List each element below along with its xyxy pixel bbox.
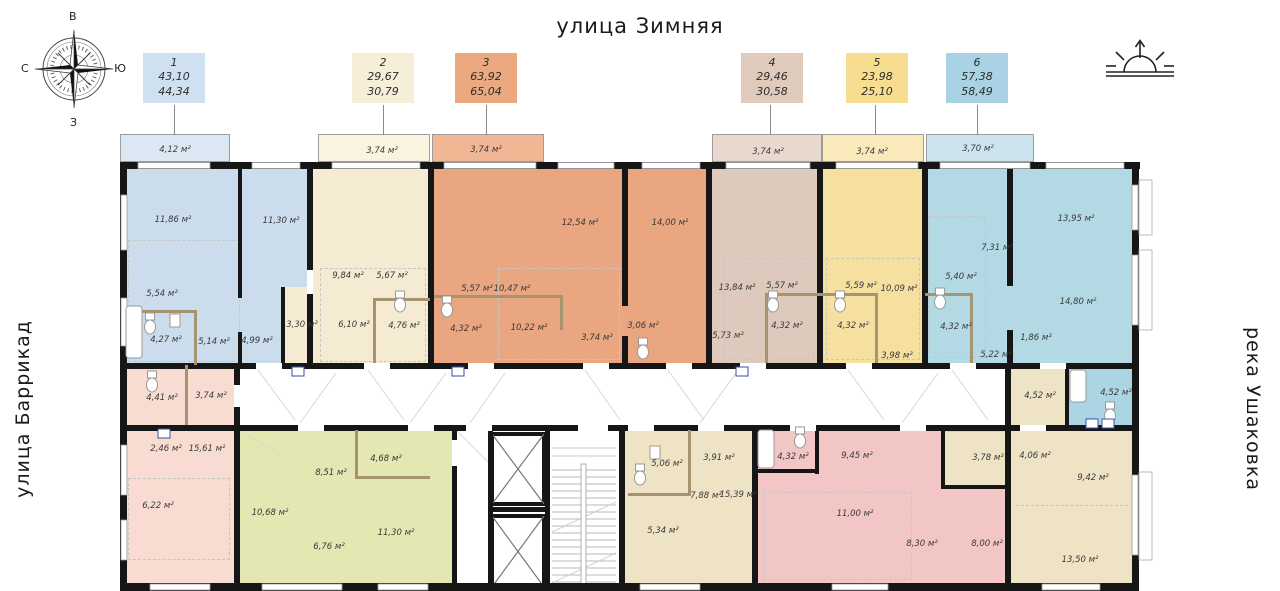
room-area-label: 4,52 м² <box>1100 388 1131 398</box>
room-area-label: 11,00 м² <box>837 509 874 519</box>
room-area-label: 15,39 м² <box>720 490 757 500</box>
apartment-number: 3 <box>455 56 517 70</box>
street-label-left: улица Баррикад <box>12 314 34 504</box>
chip-leader-line <box>486 105 487 135</box>
chip-leader-line <box>875 105 876 135</box>
room-area-label: 3,74 м² <box>195 391 226 401</box>
apartment-area-total: 58,49 <box>946 85 1008 99</box>
room-area-label: 4,68 м² <box>370 454 401 464</box>
room-area-label: 15,61 м² <box>189 444 226 454</box>
room-area-label: 4,99 м² <box>241 336 272 346</box>
room-area-label: 5,57 м² <box>766 281 797 291</box>
room-area-label: 3,30 м² <box>286 320 317 330</box>
room-area-label: 4,12 м² <box>159 145 190 155</box>
room-area-label: 10,09 м² <box>881 284 918 294</box>
room-area-label: 3,98 м² <box>881 351 912 361</box>
apartment-number: 4 <box>741 56 803 70</box>
compass-letter-bottom: З <box>70 116 77 129</box>
room-area-label: 5,40 м² <box>945 272 976 282</box>
room-area-label: 14,80 м² <box>1060 297 1097 307</box>
room-area-label: 8,30 м² <box>906 539 937 549</box>
compass-rose: В Ю З С <box>26 14 122 124</box>
room-area-label: 3,74 м² <box>581 333 612 343</box>
room-area-label: 4,06 м² <box>1019 451 1050 461</box>
room-area-label: 11,30 м² <box>378 528 415 538</box>
street-label-right: река Ушаковка <box>1242 314 1264 504</box>
room-area-label: 5,57 м² <box>461 284 492 294</box>
apartment-area-total: 65,04 <box>455 85 517 99</box>
room-area-label: 10,47 м² <box>494 284 531 294</box>
room-area-label: 13,84 м² <box>719 283 756 293</box>
apartment-area-total: 25,10 <box>846 85 908 99</box>
chip-leader-line <box>977 105 978 135</box>
room-area-label: 13,50 м² <box>1062 555 1099 565</box>
apartment-area-living: 29,46 <box>741 70 803 84</box>
room-area-label: 8,51 м² <box>315 468 346 478</box>
apartment-area-total: 30,79 <box>352 85 414 99</box>
room-area-label: 4,32 м² <box>771 321 802 331</box>
room-area-label: 12,54 м² <box>562 218 599 228</box>
apartment-number: 6 <box>946 56 1008 70</box>
room-area-label: 4,32 м² <box>837 321 868 331</box>
compass-icon <box>26 14 122 124</box>
room-area-label: 4,32 м² <box>940 322 971 332</box>
chip-leader-line <box>383 105 384 135</box>
apartment-chip-6[interactable]: 6 57,38 58,49 <box>946 53 1008 103</box>
apartment-chip-4[interactable]: 4 29,46 30,58 <box>741 53 803 103</box>
floor-plan-page: улица Зимняя улица Баррикад река Ушаковк… <box>0 0 1280 591</box>
street-label-top: улица Зимняя <box>556 14 723 38</box>
room-area-label: 3,70 м² <box>962 144 993 154</box>
apartment-chip-1[interactable]: 1 43,10 44,34 <box>143 53 205 103</box>
room-area-label: 4,76 м² <box>388 321 419 331</box>
room-area-label: 4,32 м² <box>777 452 808 462</box>
room-area-label: 5,73 м² <box>712 331 743 341</box>
room-area-label: 5,59 м² <box>845 281 876 291</box>
room-area-label: 7,88 м² <box>690 491 721 501</box>
room-area-label: 1,86 м² <box>1020 333 1051 343</box>
chip-leader-line <box>174 105 175 135</box>
room-area-label: 5,54 м² <box>146 289 177 299</box>
room-area-label: 8,00 м² <box>971 539 1002 549</box>
compass-letter-top: В <box>69 10 77 23</box>
apartment-area-living: 29,67 <box>352 70 414 84</box>
apartment-chip-2[interactable]: 2 29,67 30,79 <box>352 53 414 103</box>
room-area-label: 5,22 м² <box>980 350 1011 360</box>
apartment-chip-5[interactable]: 5 23,98 25,10 <box>846 53 908 103</box>
apartment-area-living: 23,98 <box>846 70 908 84</box>
apartment-number: 2 <box>352 56 414 70</box>
apartment-area-total: 44,34 <box>143 85 205 99</box>
room-area-label: 4,27 м² <box>150 335 181 345</box>
room-area-label: 5,34 м² <box>647 526 678 536</box>
room-area-label: 11,86 м² <box>155 215 192 225</box>
room-area-label: 4,32 м² <box>450 324 481 334</box>
room-area-label: 6,10 м² <box>338 320 369 330</box>
room-area-label: 3,74 м² <box>752 147 783 157</box>
room-area-label: 11,30 м² <box>263 216 300 226</box>
room-area-label: 9,45 м² <box>841 451 872 461</box>
compass-letter-left: С <box>21 62 29 75</box>
room-area-label: 4,52 м² <box>1024 391 1055 401</box>
room-area-label: 3,06 м² <box>627 321 658 331</box>
room-area-label: 5,67 м² <box>376 271 407 281</box>
apartment-area-total: 30,58 <box>741 85 803 99</box>
room-area-label: 3,74 м² <box>470 145 501 155</box>
room-area-label: 2,46 м² <box>150 444 181 454</box>
room-area-label: 5,06 м² <box>651 459 682 469</box>
room-area-label: 6,76 м² <box>313 542 344 552</box>
apartment-number: 5 <box>846 56 908 70</box>
room-area-label: 9,84 м² <box>332 271 363 281</box>
room-area-label: 3,74 м² <box>366 146 397 156</box>
room-area-label: 14,00 м² <box>652 218 689 228</box>
room-area-label: 3,74 м² <box>856 147 887 157</box>
room-area-label: 9,42 м² <box>1077 473 1108 483</box>
chip-leader-line <box>770 105 771 135</box>
room-area-label: 10,22 м² <box>511 323 548 333</box>
sun-icon <box>1104 36 1176 82</box>
apartment-area-living: 57,38 <box>946 70 1008 84</box>
room-area-label: 5,14 м² <box>198 337 229 347</box>
room-area-label: 3,91 м² <box>703 453 734 463</box>
apartment-area-living: 63,92 <box>455 70 517 84</box>
room-area-label: 6,22 м² <box>142 501 173 511</box>
apartment-area-living: 43,10 <box>143 70 205 84</box>
apartment-chip-3[interactable]: 3 63,92 65,04 <box>455 53 517 103</box>
room-area-label: 4,41 м² <box>146 393 177 403</box>
room-area-label: 13,95 м² <box>1058 214 1095 224</box>
room-area-label: 10,68 м² <box>252 508 289 518</box>
room-area-label: 7,31 м² <box>981 243 1012 253</box>
apartment-number: 1 <box>143 56 205 70</box>
room-area-label: 3,78 м² <box>972 453 1003 463</box>
compass-letter-right: Ю <box>114 62 126 75</box>
